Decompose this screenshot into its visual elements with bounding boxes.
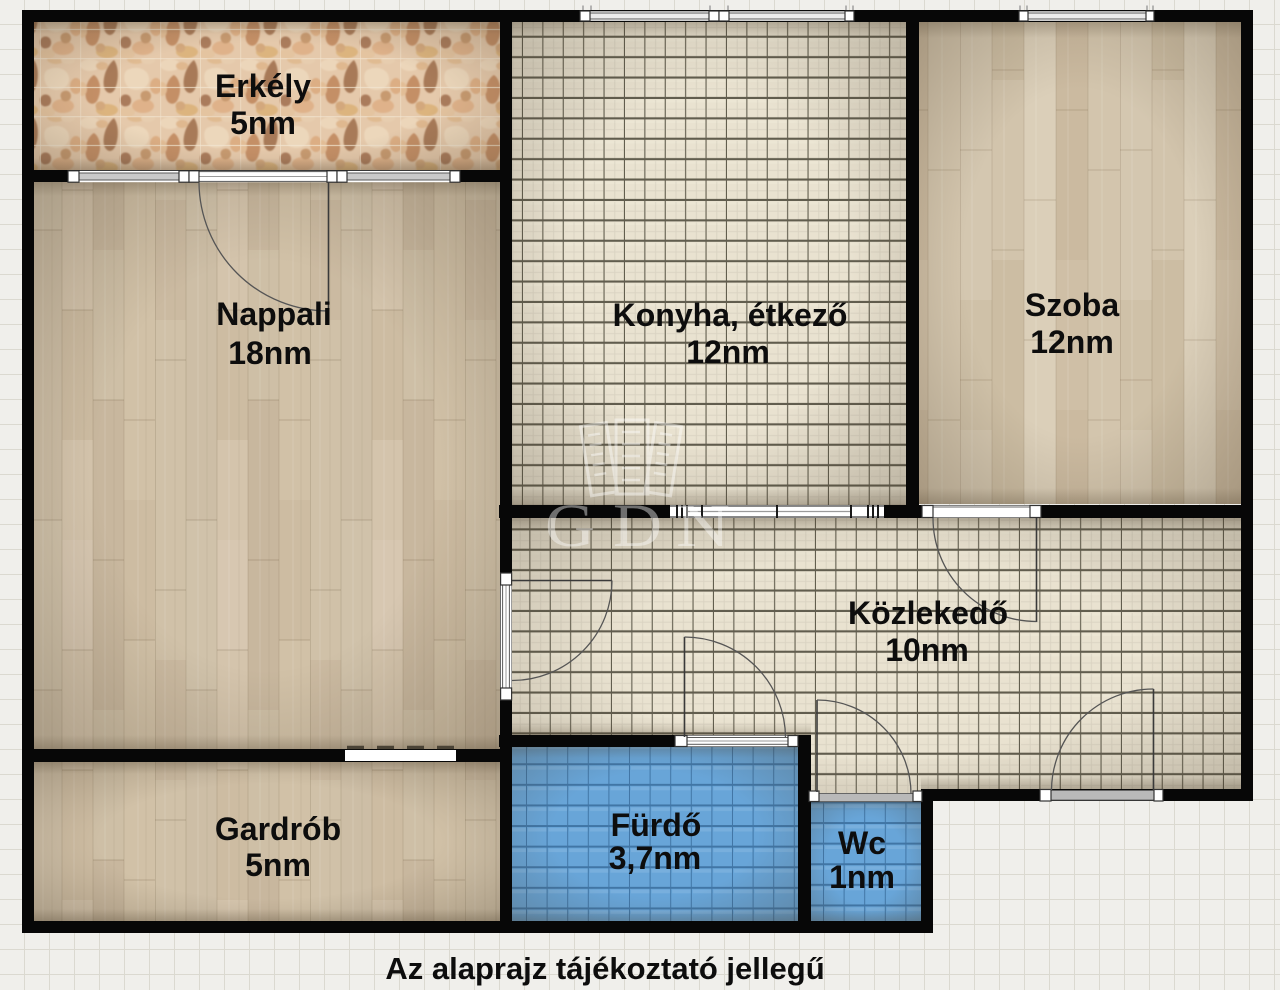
svg-text:1nm: 1nm: [829, 859, 895, 895]
svg-text:Fürdő: Fürdő: [611, 807, 702, 843]
svg-text:5nm: 5nm: [230, 105, 296, 141]
svg-text:Wc: Wc: [838, 825, 886, 861]
svg-text:12nm: 12nm: [1030, 324, 1114, 360]
svg-text:Konyha, étkező: Konyha, étkező: [613, 297, 848, 333]
svg-text:Erkély: Erkély: [215, 68, 311, 104]
svg-text:12nm: 12nm: [686, 334, 770, 370]
svg-text:18nm: 18nm: [228, 335, 312, 371]
svg-text:D: D: [613, 493, 662, 560]
svg-text:5nm: 5nm: [245, 847, 311, 883]
svg-text:Az alaprajz tájékoztató jelleg: Az alaprajz tájékoztató jellegű: [385, 951, 824, 986]
svg-text:N: N: [676, 493, 730, 560]
svg-text:G: G: [545, 493, 595, 560]
svg-text:Szoba: Szoba: [1025, 287, 1119, 323]
svg-text:Gardrób: Gardrób: [215, 811, 341, 847]
svg-text:10nm: 10nm: [885, 632, 969, 668]
svg-text:Közlekedő: Közlekedő: [848, 595, 1008, 631]
svg-text:Nappali: Nappali: [216, 296, 332, 332]
svg-text:3,7nm: 3,7nm: [609, 840, 701, 876]
